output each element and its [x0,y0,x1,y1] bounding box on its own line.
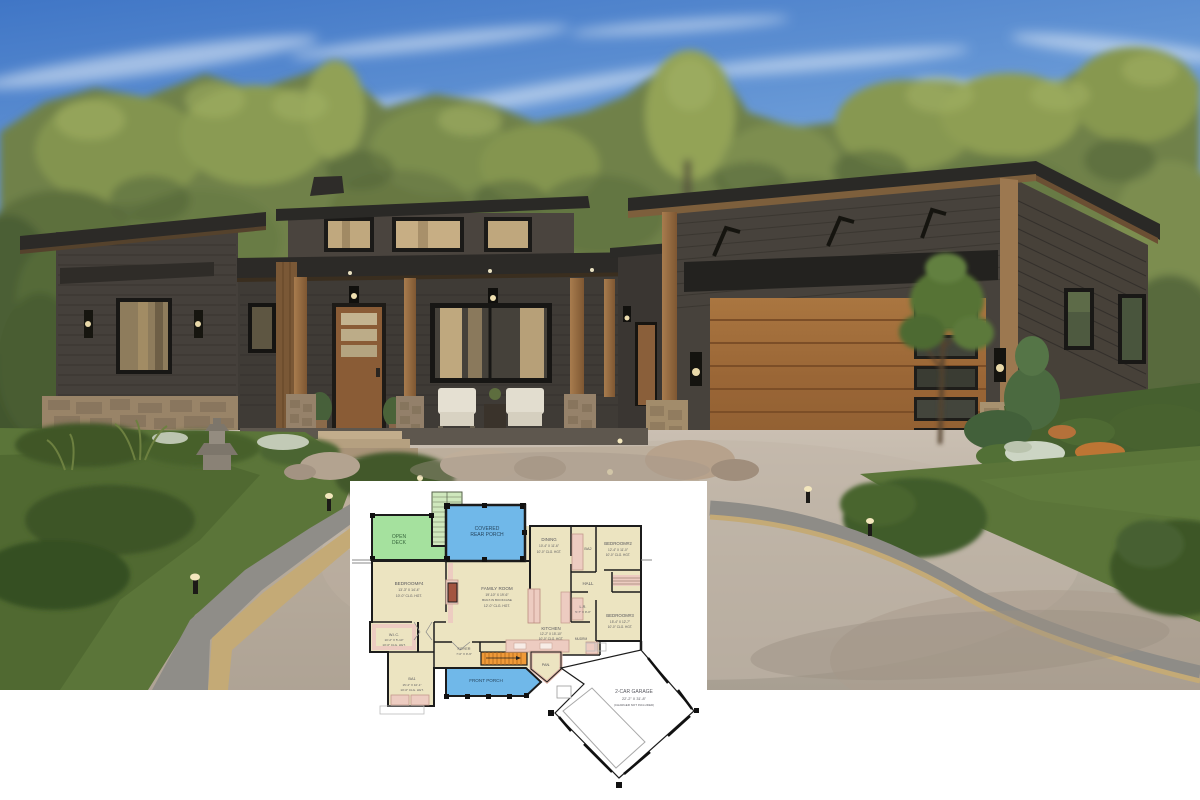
svg-text:12'-0" CLG. HGT.: 12'-0" CLG. HGT. [484,604,510,608]
svg-text:(CHARGER NOT INCLUDED): (CHARGER NOT INCLUDED) [614,703,654,707]
svg-text:10'-0" CLG. HGT.: 10'-0" CLG. HGT. [537,550,562,554]
svg-text:22'-2" X 31'-8": 22'-2" X 31'-8" [622,697,647,701]
svg-text:19'-10" X 19'-6": 19'-10" X 19'-6" [485,593,509,597]
svg-text:10'-0" CLG. HGT.: 10'-0" CLG. HGT. [400,688,423,692]
svg-text:FRONT PORCH: FRONT PORCH [469,678,503,683]
svg-text:12'-4" X 11'-0": 12'-4" X 11'-0" [608,548,628,552]
svg-text:BEDROOM#2: BEDROOM#2 [604,541,632,546]
svg-text:W.I.C.: W.I.C. [389,633,399,637]
svg-text:KITCHEN: KITCHEN [541,626,560,631]
svg-text:DECK: DECK [392,540,407,546]
svg-text:10'-0" CLG. HGT.: 10'-0" CLG. HGT. [539,637,564,641]
svg-text:BUILT-IN BOOKCASE: BUILT-IN BOOKCASE [482,598,512,602]
svg-text:10'-0" CLG. HGT.: 10'-0" CLG. HGT. [382,643,405,647]
svg-text:DINING: DINING [541,537,557,542]
svg-text:FAMILY ROOM: FAMILY ROOM [481,586,513,591]
svg-text:12'-2" X 15'-10": 12'-2" X 15'-10" [540,632,562,636]
svg-text:MUDRM: MUDRM [575,637,588,641]
svg-text:BEDROOM#3: BEDROOM#3 [606,613,634,618]
svg-text:10'-4" X 11'-6": 10'-4" X 11'-6" [539,544,559,548]
svg-text:10'-2" X 5'-10": 10'-2" X 5'-10" [385,638,404,642]
svg-text:10'-0" CLG. HGT.: 10'-0" CLG. HGT. [608,625,633,629]
svg-text:HALL: HALL [583,581,595,586]
svg-text:15'-4" X 10'-1": 15'-4" X 10'-1" [403,683,422,687]
svg-text:BEDROOM#4: BEDROOM#4 [395,581,424,586]
svg-text:REAR PORCH: REAR PORCH [470,532,504,538]
svg-text:FOYER: FOYER [457,647,470,651]
svg-text:PAN.: PAN. [542,663,551,667]
svg-text:10'-0" CLG. HGT.: 10'-0" CLG. HGT. [606,553,631,557]
svg-text:7'-0" X 9'-9": 7'-0" X 9'-9" [456,652,472,656]
svg-text:10'-0" CLG. HGT.: 10'-0" CLG. HGT. [396,594,422,598]
svg-text:2-CAR GARAGE: 2-CAR GARAGE [615,689,653,695]
svg-text:5'-7" X 9'-0": 5'-7" X 9'-0" [575,610,591,614]
svg-text:13'-3" X 14'-4": 13'-3" X 14'-4" [398,588,420,592]
svg-text:15'-4" X 12'-7": 15'-4" X 12'-7" [610,620,630,624]
svg-text:BA1: BA1 [408,677,415,681]
svg-text:L.R.: L.R. [580,605,587,609]
svg-text:BA2: BA2 [584,547,591,551]
